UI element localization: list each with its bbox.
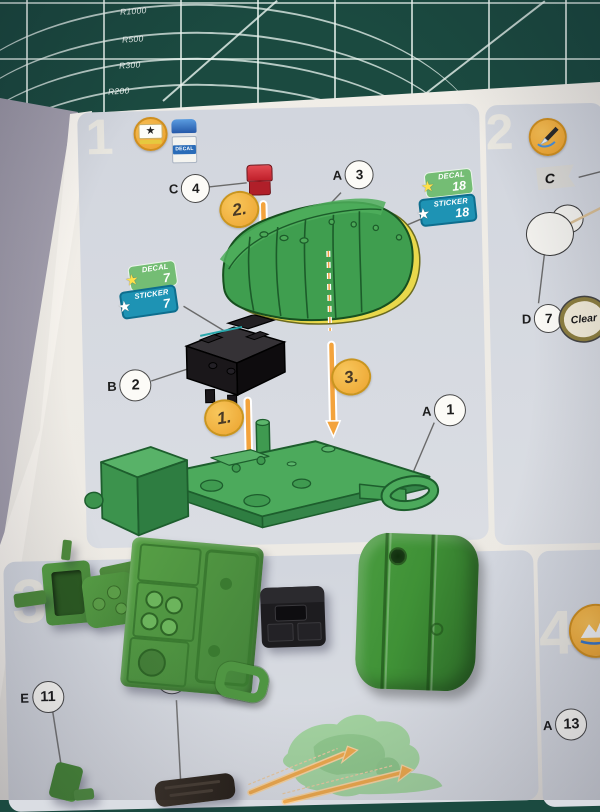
glue-star-icon: ★: [133, 117, 168, 152]
star-glyph: ★: [117, 297, 133, 317]
step1-number: 1: [85, 112, 114, 163]
mat-label: R200: [108, 85, 130, 96]
step2-number: 2: [485, 107, 514, 158]
callout-a3: A 3: [332, 160, 374, 190]
callout-d7: D 7: [522, 304, 564, 334]
mat-label: R300: [119, 59, 141, 70]
action-step-3: 3.: [328, 355, 373, 398]
mat-label: R500: [122, 33, 144, 44]
callout-a13: A 13: [543, 708, 588, 741]
callout-c4: C 4: [169, 174, 211, 204]
photo-of-instruction-page: { "mat": { "labels": ["R1000", "R500", "…: [0, 0, 600, 800]
chassis-part-illustration: [62, 408, 445, 552]
black-battery-part-photo: [260, 586, 326, 648]
paint-brush-icon: [528, 118, 567, 157]
callout-e11: E 11: [20, 681, 64, 714]
green-hood-part-photo: [354, 532, 479, 692]
mat-diagonal-line: [419, 0, 545, 98]
decal-fix-bottle-icon: DECAL: [171, 119, 197, 162]
step1-panel: 1 ★ DECAL: [77, 103, 489, 548]
star-glyph: ★: [145, 126, 155, 137]
paint-flag-c: C: [536, 164, 576, 190]
callout-a1: A 1: [422, 394, 467, 427]
mat-label: R1000: [120, 5, 147, 17]
red-cap-part-illustration: [246, 164, 273, 197]
star-glyph: ★: [124, 270, 140, 290]
clear-paint-chip: Clear: [558, 295, 600, 344]
step4-panel: 4 A 13: [537, 549, 600, 807]
green-bit-part-photo: [73, 788, 94, 801]
battery-part-illustration: [170, 314, 300, 409]
callout-b2: B 2: [107, 369, 152, 402]
tractor-artwork-lower: [296, 766, 449, 803]
step2-panel: 2 C D 7 Clear: [485, 103, 600, 546]
bottle-label: DECAL: [173, 145, 195, 155]
